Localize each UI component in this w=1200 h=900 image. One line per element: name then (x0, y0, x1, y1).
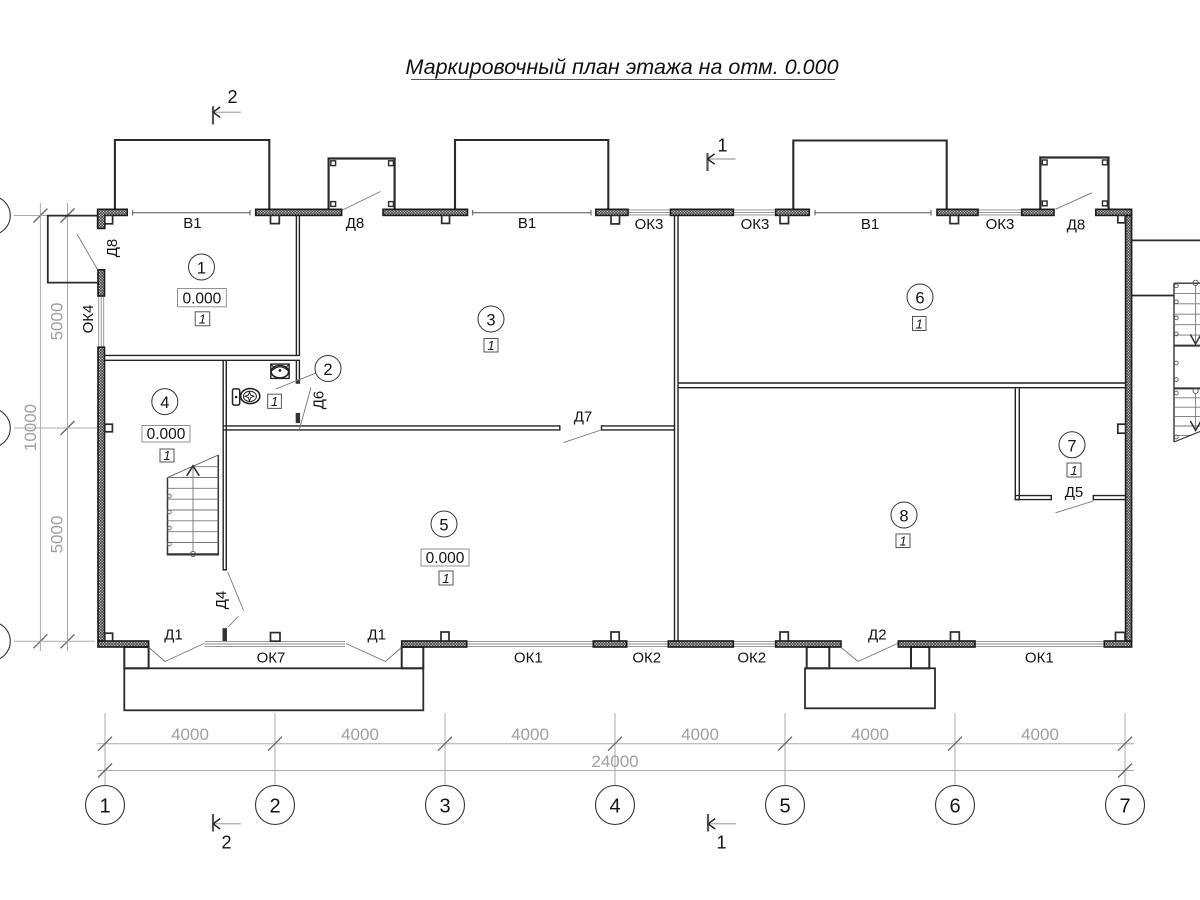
svg-text:ОК7: ОК7 (257, 650, 286, 667)
svg-text:7: 7 (1119, 795, 1130, 817)
svg-text:2: 2 (222, 833, 232, 853)
svg-text:6: 6 (915, 290, 924, 308)
svg-text:ОК1: ОК1 (514, 650, 543, 667)
svg-text:1: 1 (1070, 463, 1077, 478)
svg-text:1: 1 (916, 316, 923, 331)
svg-text:Д8: Д8 (1067, 217, 1086, 234)
svg-text:4000: 4000 (681, 725, 719, 744)
svg-text:1: 1 (99, 795, 110, 817)
svg-text:Д2: Д2 (868, 627, 887, 644)
svg-text:В1: В1 (861, 216, 879, 233)
svg-text:ОК4: ОК4 (80, 305, 97, 334)
svg-text:4: 4 (609, 795, 620, 817)
svg-text:ОК2: ОК2 (737, 650, 766, 667)
svg-text:1: 1 (163, 448, 170, 463)
svg-text:ОК1: ОК1 (1025, 650, 1054, 667)
svg-text:Д1: Д1 (367, 627, 386, 644)
svg-text:1: 1 (197, 260, 206, 278)
svg-text:5000: 5000 (48, 516, 67, 554)
svg-text:2: 2 (323, 361, 332, 379)
svg-text:В1: В1 (518, 215, 536, 232)
svg-text:Д7: Д7 (574, 409, 593, 426)
svg-text:1: 1 (199, 312, 206, 327)
svg-text:4000: 4000 (341, 725, 379, 744)
svg-text:Д8: Д8 (104, 239, 121, 258)
svg-text:ОК3: ОК3 (635, 216, 664, 233)
svg-text:4000: 4000 (1021, 725, 1059, 744)
svg-text:0.000: 0.000 (426, 550, 465, 567)
svg-text:1: 1 (487, 338, 494, 353)
svg-text:1: 1 (718, 136, 728, 156)
svg-text:0.000: 0.000 (147, 426, 186, 443)
svg-text:Д8: Д8 (346, 215, 365, 232)
svg-text:Д4: Д4 (213, 591, 230, 610)
svg-text:3: 3 (439, 795, 450, 817)
svg-text:2: 2 (228, 87, 238, 107)
svg-text:6: 6 (949, 795, 960, 817)
svg-text:Маркировочный план этажа на от: Маркировочный план этажа на отм. 0.000 (405, 55, 838, 79)
svg-text:24000: 24000 (591, 752, 638, 771)
svg-text:4000: 4000 (851, 725, 889, 744)
svg-text:1: 1 (717, 833, 727, 853)
svg-text:3: 3 (486, 312, 495, 330)
svg-text:ОК3: ОК3 (986, 216, 1015, 233)
svg-text:ОК2: ОК2 (632, 650, 661, 667)
svg-text:2: 2 (269, 795, 280, 817)
svg-text:7: 7 (1067, 437, 1076, 455)
svg-text:10000: 10000 (21, 404, 40, 451)
svg-text:4000: 4000 (511, 725, 549, 744)
svg-text:ОК3: ОК3 (741, 216, 770, 233)
svg-text:В1: В1 (183, 215, 201, 232)
svg-text:1: 1 (442, 571, 449, 586)
svg-text:5: 5 (439, 517, 448, 535)
svg-text:1: 1 (899, 533, 906, 548)
svg-text:4: 4 (160, 394, 169, 412)
svg-text:5: 5 (779, 795, 790, 817)
svg-text:Д1: Д1 (164, 627, 183, 644)
svg-text:5000: 5000 (48, 303, 67, 341)
svg-text:Д6: Д6 (311, 391, 328, 410)
svg-text:8: 8 (899, 508, 908, 526)
svg-text:Д5: Д5 (1065, 484, 1084, 501)
svg-text:4000: 4000 (171, 725, 209, 744)
svg-text:1: 1 (271, 394, 278, 409)
svg-text:0.000: 0.000 (183, 290, 222, 307)
